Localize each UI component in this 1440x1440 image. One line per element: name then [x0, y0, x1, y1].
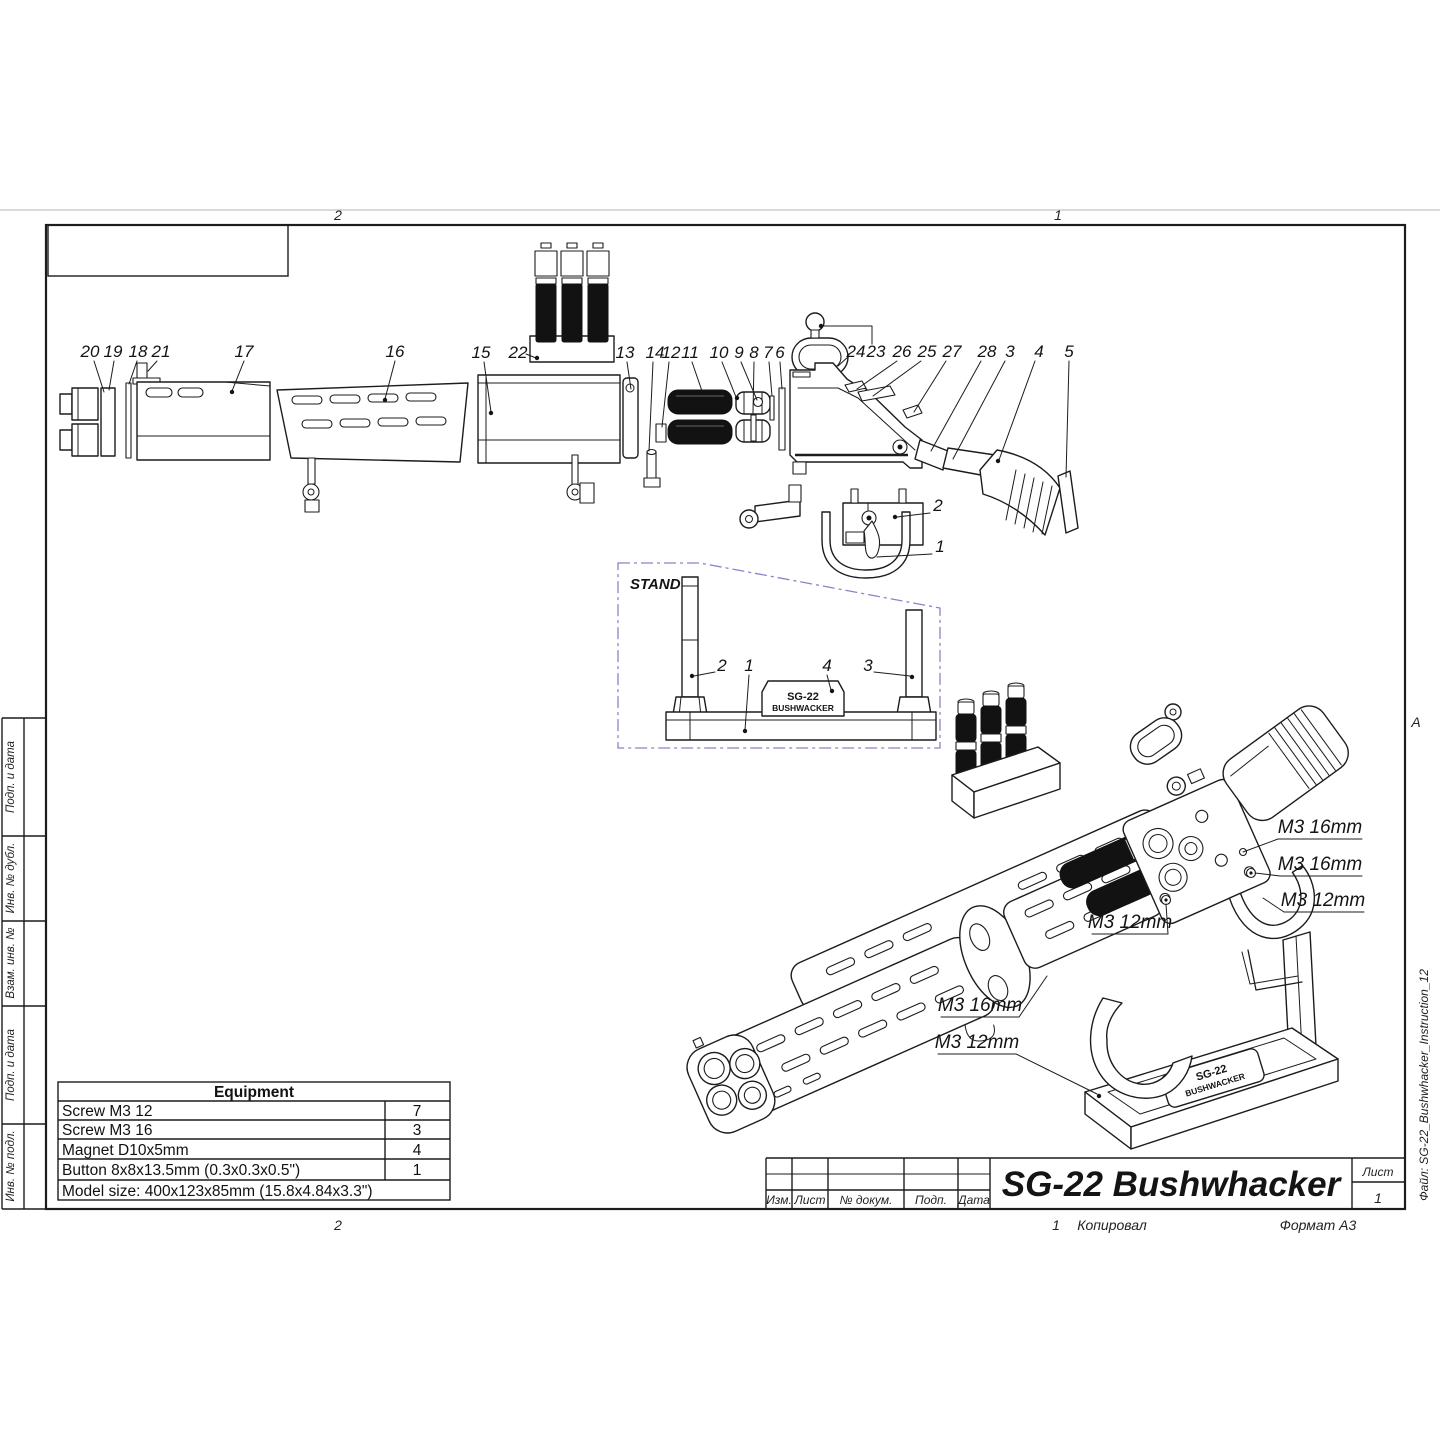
drawing-title: SG-22 Bushwhacker	[1002, 1165, 1343, 1204]
equipment-row-qty: 7	[413, 1103, 422, 1120]
part-strip	[779, 388, 785, 450]
part-butt-pads	[60, 388, 98, 456]
part-callout: 24	[846, 342, 866, 361]
part-callout: 7	[763, 343, 773, 362]
margin-label: Инв. № дубл.	[5, 843, 17, 914]
part-callout: 21	[151, 342, 171, 361]
part-callout: 20	[80, 342, 100, 361]
part-clip	[903, 405, 922, 418]
zone-marker: 2	[333, 207, 342, 223]
stand-right-post	[895, 610, 933, 726]
margin-stamp: Подп. и дата Инв. № дубл. Взам. инв. № П…	[2, 718, 46, 1209]
part-handguard	[277, 383, 468, 512]
assembled-sling-loop	[1124, 704, 1188, 770]
screw-label: M3 12mm	[1281, 890, 1365, 911]
screw-label: M3 12mm	[935, 1032, 1019, 1053]
part-callout: 22	[508, 343, 528, 362]
stand-name-plate: SG-22 BUSHWACKER	[762, 681, 844, 716]
revision-box	[48, 225, 288, 276]
sheet-label: Лист	[1362, 1165, 1394, 1179]
part-callout: 10	[710, 343, 729, 362]
title-col-dokum: № докум.	[840, 1193, 893, 1207]
zone-marker: 1	[1054, 207, 1062, 223]
sheet-number: 1	[1374, 1190, 1382, 1206]
equipment-row-name: Screw M3 12	[62, 1103, 152, 1120]
screw-label: M3 12mm	[1088, 912, 1172, 933]
part-callout: 11	[681, 343, 699, 362]
part-callout: 5	[1064, 342, 1074, 361]
part-washer	[656, 424, 666, 442]
part-callout: 26	[892, 342, 912, 361]
part-callout: 19	[104, 342, 123, 361]
part-strip-angled	[1058, 471, 1078, 533]
margin-label: Подп. и дата	[5, 1029, 17, 1101]
title-col-podp: Подп.	[915, 1193, 947, 1207]
part-callout: 28	[977, 342, 997, 361]
part-callout: 25	[917, 342, 937, 361]
part-callout: 15	[472, 343, 491, 362]
part-thin-plate	[126, 383, 131, 458]
part-callout: 9	[734, 343, 744, 362]
part-callout: 16	[386, 342, 405, 361]
equipment-row-qty: 4	[413, 1142, 422, 1159]
part-callout: 17	[235, 342, 254, 361]
title-col-izm: Изм.	[766, 1193, 792, 1207]
zone-marker: 1	[1052, 1217, 1060, 1233]
stand-callout: 3	[863, 656, 873, 675]
part-callout: 1	[935, 537, 944, 556]
part-rod	[770, 396, 774, 420]
assembled-shell-holder	[952, 683, 1060, 818]
part-callout: 4	[1034, 342, 1043, 361]
plate-text: SG-22	[787, 691, 819, 703]
part-pin-small	[751, 415, 756, 441]
margin-label: Подп. и дата	[5, 741, 17, 813]
assembled-stand-base: SG-22 BUSHWACKER	[1085, 932, 1338, 1149]
part-trigger-group	[822, 489, 923, 578]
stand-left-post	[671, 577, 709, 726]
equipment-row-name: Screw M3 16	[62, 1122, 152, 1139]
zone-marker: A	[1410, 714, 1420, 730]
part-pin-flange	[644, 450, 660, 488]
screw-label: M3 16mm	[938, 995, 1022, 1016]
title-block: Изм. Лист № докум. Подп. Дата SG-22 Bush…	[766, 1158, 1405, 1209]
equipment-row-name: Button 8x8x13.5mm (0.3x0.3x0.5")	[62, 1162, 300, 1179]
margin-label: Взам. инв. №	[5, 927, 17, 999]
shells-exploded	[535, 243, 609, 342]
part-callout: 2	[932, 496, 943, 515]
part-callout: 3	[1005, 342, 1015, 361]
equipment-row-name: Magnet D10x5mm	[62, 1142, 189, 1159]
screw-label: M3 16mm	[1278, 854, 1362, 875]
format-label: Формат А3	[1280, 1217, 1357, 1233]
title-col-list: Лист	[794, 1193, 826, 1207]
part-callout: 6	[775, 343, 785, 362]
equipment-row-qty: 3	[413, 1122, 422, 1139]
zone-marker: 2	[333, 1217, 342, 1233]
drawing-canvas: 2 1 2 1 A Копировал Формат А3 Файл: SG-2…	[0, 0, 1440, 1440]
equipment-table: Equipment Screw M3 12 7 Screw M3 16 3 Ma…	[58, 1082, 450, 1200]
part-callout: 23	[866, 342, 886, 361]
part-callout: 12	[662, 343, 681, 362]
part-elbow-mount	[740, 485, 801, 528]
part-spacer	[101, 388, 115, 456]
title-col-data: Дата	[956, 1193, 990, 1207]
part-callout: 13	[616, 343, 635, 362]
file-label: Файл: SG-22_Bushwhacker_Instruction_12	[1417, 969, 1431, 1201]
equipment-row-qty: 1	[413, 1162, 422, 1179]
part-sling-stud	[303, 458, 319, 512]
equipment-header: Equipment	[214, 1084, 294, 1101]
screw-label: M3 16mm	[1278, 817, 1362, 838]
stand-callout: 2	[716, 656, 727, 675]
stand-label: STAND	[630, 576, 681, 593]
copied-label: Копировал	[1077, 1217, 1147, 1233]
part-callout: 18	[129, 342, 148, 361]
assembled-view: SG-22 BUSHWACKER	[652, 683, 1410, 1181]
part-receiver-shell	[478, 375, 620, 503]
part-callout: 27	[942, 342, 962, 361]
part-callout: 8	[749, 343, 759, 362]
margin-label: Инв. № подл.	[5, 1130, 17, 1201]
part-stock	[137, 382, 270, 460]
part-side-plate	[623, 378, 638, 458]
exploded-view	[60, 243, 1078, 578]
part-bracket	[133, 363, 160, 384]
stand-detail-box: STAND SG-22 BUSHWACKER 2 1 4	[618, 563, 940, 748]
part-black-cylinders	[668, 390, 732, 444]
equipment-footer: Model size: 400x123x85mm (15.8x4.84x3.3"…	[62, 1183, 373, 1200]
part-cap	[754, 398, 763, 407]
part-grip-curve	[980, 450, 1060, 535]
stand-callout: 4	[822, 656, 831, 675]
plate-text: BUSHWACKER	[772, 703, 834, 713]
stand-callout: 1	[744, 656, 753, 675]
part-grip-frame	[790, 363, 922, 474]
